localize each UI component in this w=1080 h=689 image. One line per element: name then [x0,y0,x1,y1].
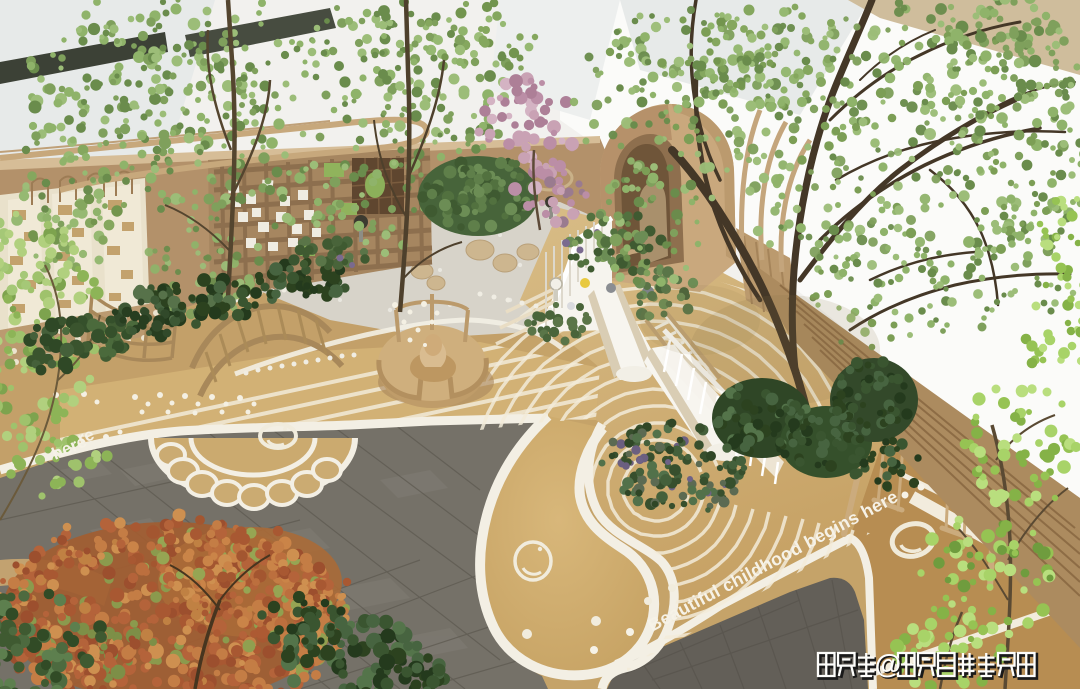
svg-text:@: @ [875,649,901,679]
